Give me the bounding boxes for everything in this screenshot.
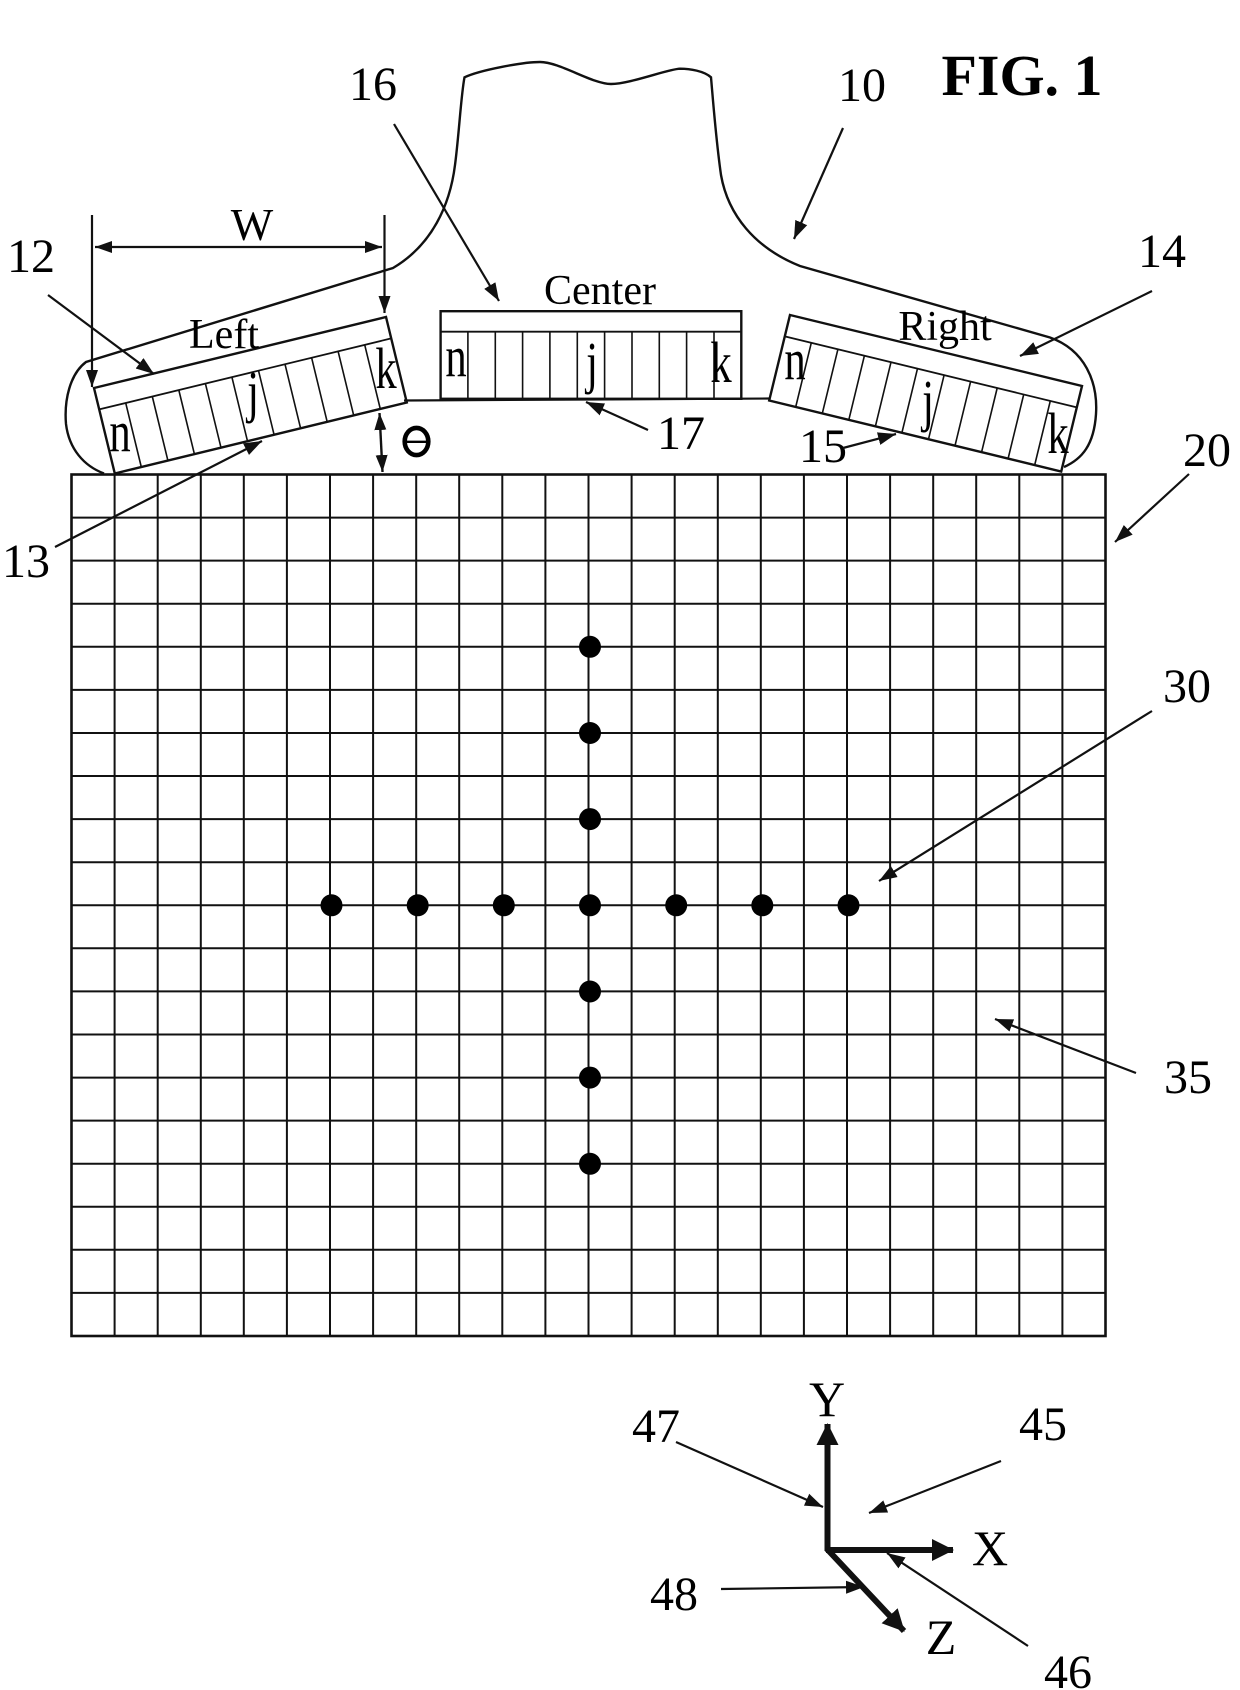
svg-text:45: 45 [1019, 1398, 1067, 1451]
svg-text:X: X [972, 1520, 1008, 1576]
svg-text:k: k [375, 338, 397, 402]
svg-text:12: 12 [7, 230, 55, 283]
svg-text:Y: Y [809, 1371, 845, 1427]
svg-text:13: 13 [2, 535, 50, 588]
svg-text:48: 48 [650, 1568, 698, 1621]
svg-text:Left: Left [189, 312, 259, 358]
svg-text:16: 16 [349, 58, 397, 111]
svg-text:15: 15 [799, 420, 847, 473]
svg-text:30: 30 [1163, 660, 1211, 713]
svg-text:20: 20 [1183, 424, 1231, 477]
svg-text:FIG. 1: FIG. 1 [941, 43, 1102, 108]
svg-text:35: 35 [1164, 1051, 1212, 1104]
svg-text:n: n [109, 401, 130, 465]
svg-text:Center: Center [544, 268, 656, 314]
svg-text:j: j [584, 332, 598, 396]
svg-text:j: j [920, 370, 934, 434]
svg-text:Right: Right [898, 304, 992, 350]
svg-text:n: n [784, 329, 805, 393]
svg-text:k: k [710, 332, 732, 396]
svg-text:k: k [1047, 403, 1069, 467]
svg-text:10: 10 [838, 59, 886, 112]
svg-text:17: 17 [657, 407, 705, 460]
svg-text:46: 46 [1044, 1646, 1092, 1690]
svg-text:Z: Z [926, 1609, 957, 1665]
svg-text:j: j [245, 361, 259, 425]
svg-text:n: n [445, 326, 466, 390]
svg-text:47: 47 [632, 1400, 680, 1453]
svg-text:W: W [231, 200, 274, 250]
svg-text:14: 14 [1138, 225, 1186, 278]
